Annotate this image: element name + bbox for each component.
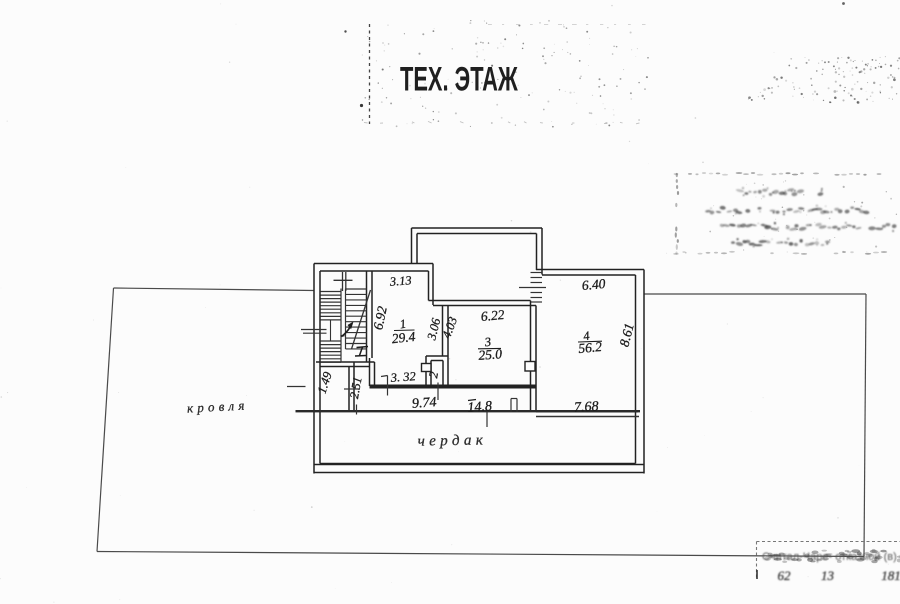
svg-text:181: 181: [881, 568, 900, 583]
svg-text:13: 13: [821, 568, 835, 583]
svg-text:29.4: 29.4: [391, 329, 416, 346]
svg-text:56.2: 56.2: [578, 339, 603, 356]
svg-text:7.68: 7.68: [574, 399, 599, 415]
svg-text:6.40: 6.40: [581, 276, 606, 293]
svg-text:9.74: 9.74: [412, 395, 437, 412]
svg-text:3.13: 3.13: [388, 273, 412, 289]
svg-text:25.0: 25.0: [478, 346, 503, 363]
svg-text:14.8: 14.8: [467, 399, 492, 416]
svg-text:6.22: 6.22: [480, 307, 505, 324]
svg-text:62: 62: [778, 568, 792, 583]
svg-text:чердак: чердак: [417, 432, 487, 449]
svg-text:3. 32: 3. 32: [389, 369, 416, 385]
svg-text:ТЕХ. ЭТАЖ: ТЕХ. ЭТАЖ: [400, 61, 518, 99]
